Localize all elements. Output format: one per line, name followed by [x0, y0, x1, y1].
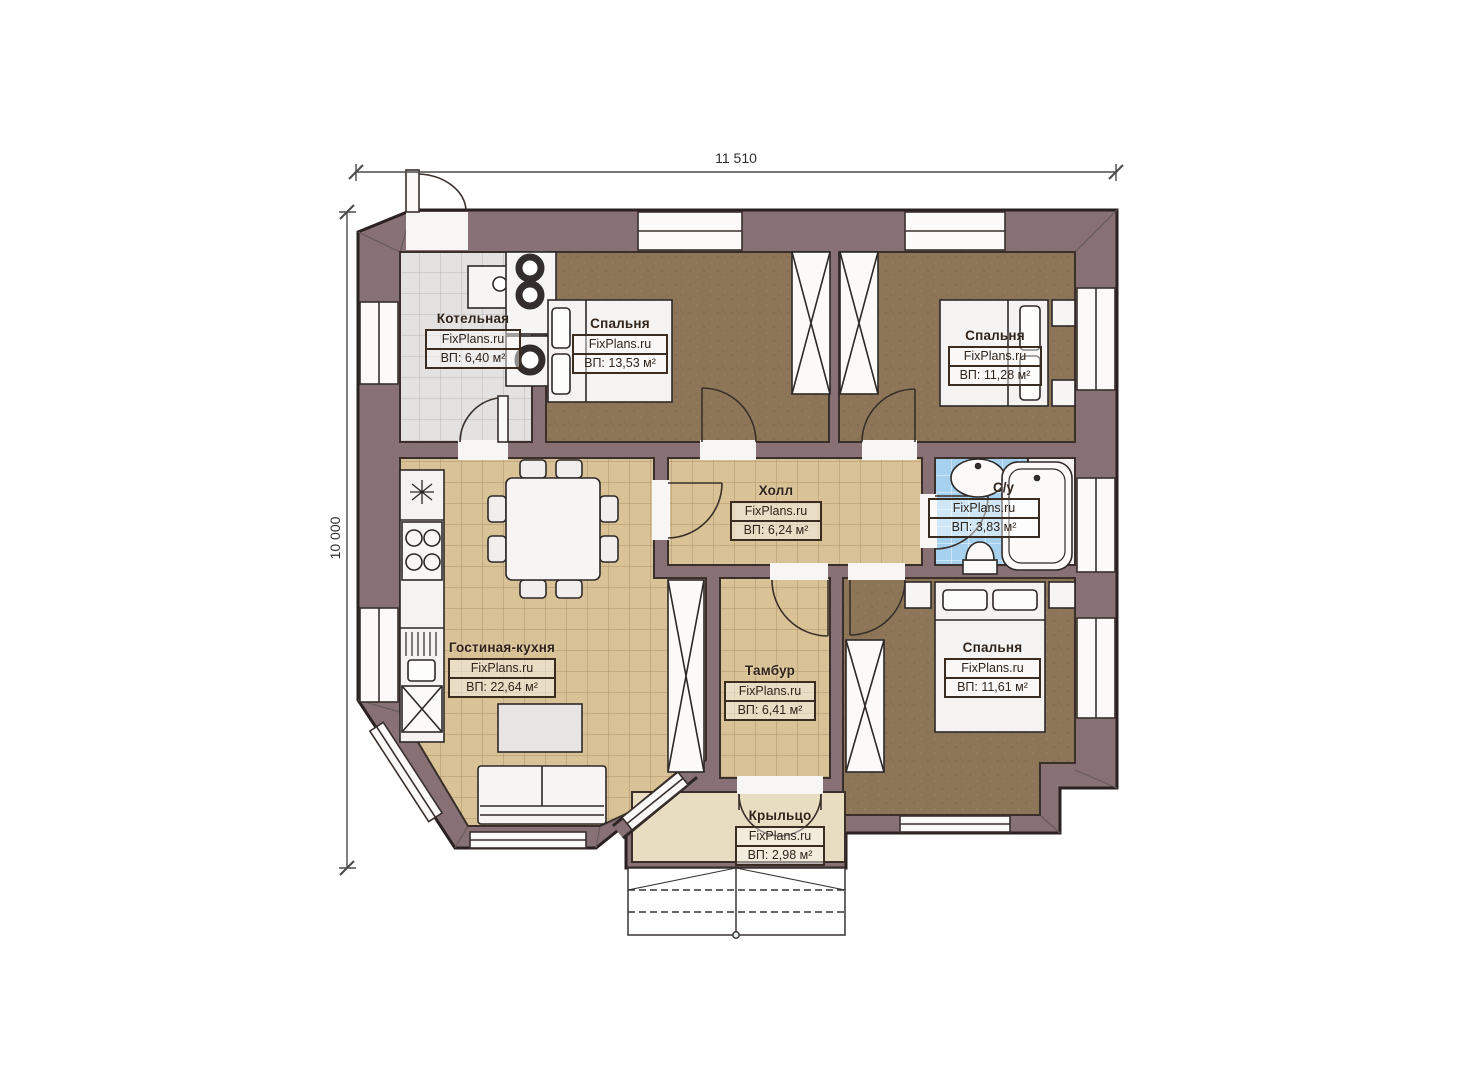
room-label-gostinaya-kuhnya: Гостиная-кухня FixPlans.ru ВП: 22,64 м²	[448, 640, 556, 698]
room-name: Холл	[730, 483, 822, 498]
room-label-kotelnaya: Котельная FixPlans.ru ВП: 6,40 м²	[425, 311, 521, 369]
room-brand: FixPlans.ru	[450, 660, 554, 679]
window-bottom-bedroom3	[900, 816, 1010, 832]
room-brand: FixPlans.ru	[427, 331, 519, 350]
kitchen-counter	[400, 470, 444, 742]
room-info-box: FixPlans.ru ВП: 3,83 м²	[928, 498, 1040, 538]
room-info-box: FixPlans.ru ВП: 11,28 м²	[948, 346, 1042, 386]
room-area: ВП: 22,64 м²	[450, 679, 554, 696]
room-brand: FixPlans.ru	[946, 660, 1039, 679]
room-label-holl: Холл FixPlans.ru ВП: 6,24 м²	[730, 483, 822, 541]
room-brand: FixPlans.ru	[930, 500, 1038, 519]
dimension-height-label: 10 000	[327, 498, 343, 578]
room-brand: FixPlans.ru	[737, 828, 823, 847]
room-name: Крыльцо	[735, 808, 825, 823]
room-label-tambur: Тамбур FixPlans.ru ВП: 6,41 м²	[724, 663, 816, 721]
room-brand: FixPlans.ru	[950, 348, 1040, 367]
wardrobe-bedroom3	[846, 640, 884, 772]
room-name-sanuzel: С/у	[993, 480, 1014, 495]
room-info-box: FixPlans.ru ВП: 11,61 м²	[944, 658, 1041, 698]
room-area: ВП: 6,41 м²	[726, 702, 814, 719]
window-right-bedroom3	[1077, 618, 1115, 718]
room-brand: FixPlans.ru	[726, 683, 814, 702]
room-area: ВП: 3,83 м²	[930, 519, 1038, 536]
room-brand: FixPlans.ru	[732, 503, 820, 522]
window-right-bedroom2	[1077, 288, 1115, 390]
room-info-box: FixPlans.ru ВП: 13,53 м²	[572, 334, 668, 374]
room-area: ВП: 2,98 м²	[737, 847, 823, 864]
room-brand: FixPlans.ru	[574, 336, 666, 355]
room-name: Спальня	[572, 316, 668, 331]
room-area: ВП: 6,40 м²	[427, 350, 519, 367]
room-name: Гостиная-кухня	[448, 640, 556, 655]
room-name: Тамбур	[724, 663, 816, 678]
wardrobe-bedroom2	[840, 252, 878, 394]
room-info-box: FixPlans.ru ВП: 6,40 м²	[425, 329, 521, 369]
dimension-top	[349, 164, 1123, 181]
room-name: Спальня	[944, 640, 1041, 655]
room-info-box: FixPlans.ru ВП: 6,41 м²	[724, 681, 816, 721]
room-info-box: FixPlans.ru ВП: 22,64 м²	[448, 658, 556, 698]
room-area: ВП: 11,61 м²	[946, 679, 1039, 696]
room-area: ВП: 13,53 м²	[574, 355, 666, 372]
dining-table	[488, 460, 618, 598]
floor-plan-page: 11 510 10 000 Котельная FixPlans.ru ВП: …	[0, 0, 1473, 1080]
window-top-bedroom2	[905, 212, 1005, 250]
porch-steps	[628, 868, 845, 938]
room-label-sanuzel: FixPlans.ru ВП: 3,83 м²	[928, 498, 1040, 538]
wardrobe-bedroom1	[792, 252, 830, 394]
room-name: Спальня	[948, 328, 1042, 343]
room-label-spalnya-3: Спальня FixPlans.ru ВП: 11,61 м²	[944, 640, 1041, 698]
dimension-width-label: 11 510	[356, 150, 1116, 166]
wardrobe-living	[668, 580, 704, 772]
room-name: Котельная	[425, 311, 521, 326]
sofa	[478, 766, 606, 824]
stove	[402, 522, 442, 580]
window-right-bathroom	[1077, 478, 1115, 572]
room-label-krylco: Крыльцо FixPlans.ru ВП: 2,98 м²	[735, 808, 825, 866]
room-label-spalnya-2: Спальня FixPlans.ru ВП: 11,28 м²	[948, 328, 1042, 386]
window-bay-bottom	[470, 832, 586, 848]
room-area: ВП: 11,28 м²	[950, 367, 1040, 384]
window-left-kitchen	[360, 608, 398, 702]
window-top-bedroom1	[638, 212, 742, 250]
room-area: ВП: 6,24 м²	[732, 522, 820, 539]
coffee-table	[498, 704, 582, 752]
room-info-box: FixPlans.ru ВП: 6,24 м²	[730, 501, 822, 541]
room-label-spalnya-1: Спальня FixPlans.ru ВП: 13,53 м²	[572, 316, 668, 374]
window-left-boiler	[360, 302, 398, 384]
room-info-box: FixPlans.ru ВП: 2,98 м²	[735, 826, 825, 866]
fridge	[402, 686, 442, 732]
entry-door	[406, 170, 466, 212]
